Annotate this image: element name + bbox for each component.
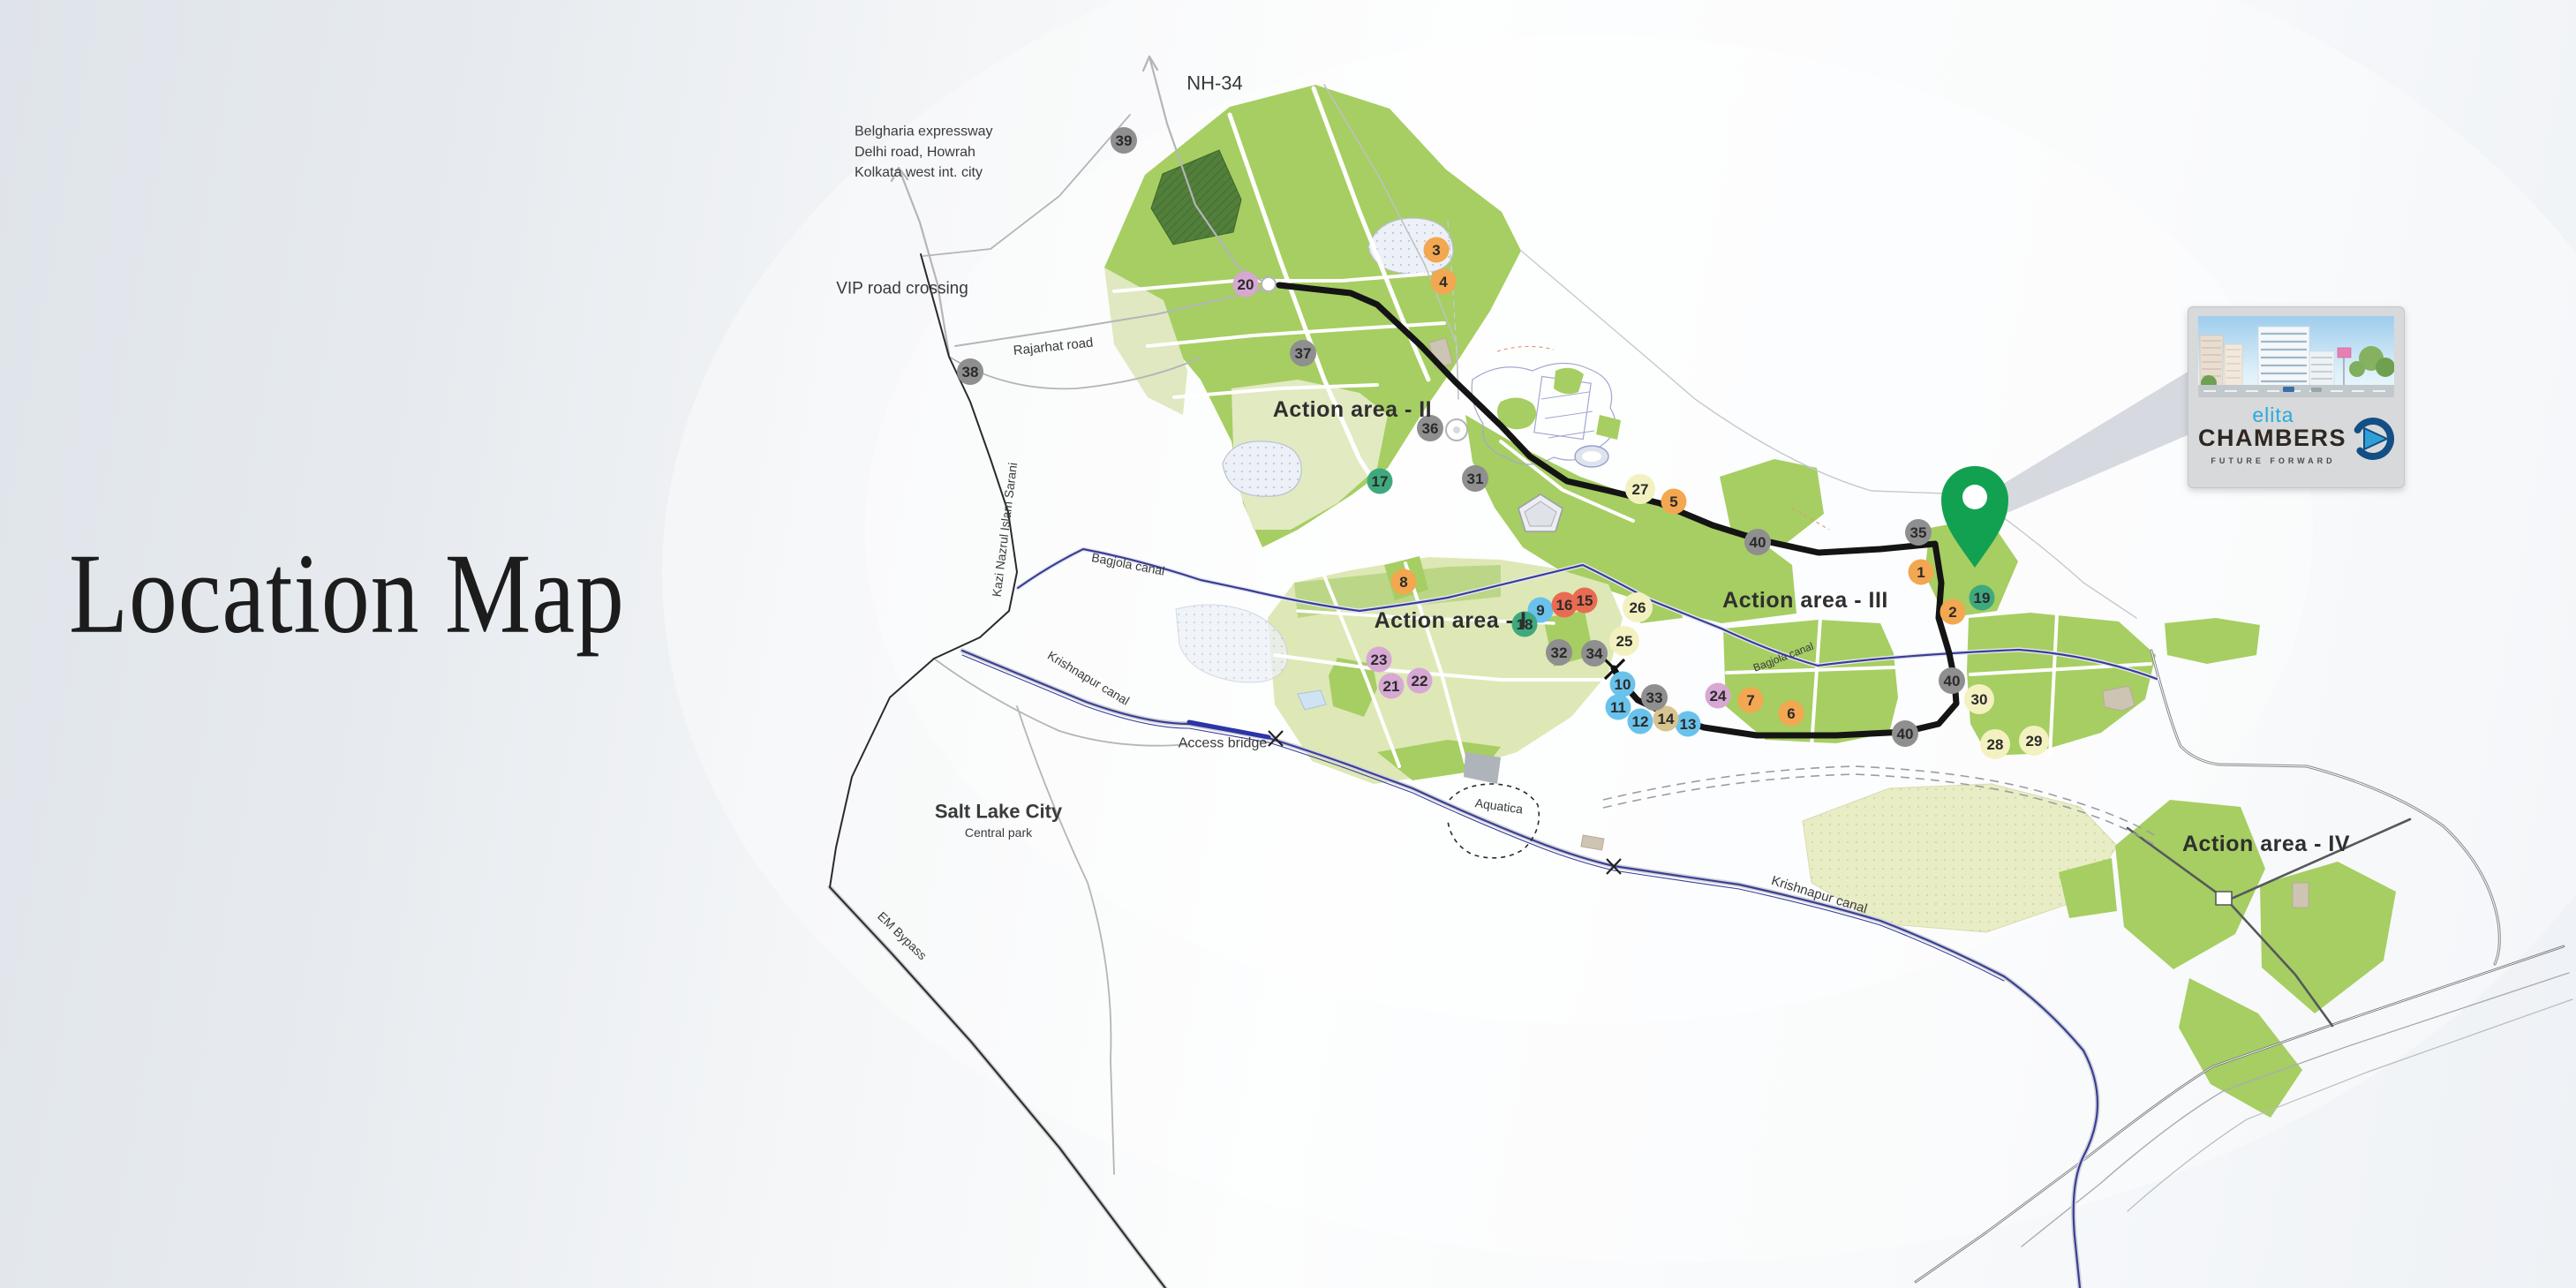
svg-text:21: 21 [1383, 678, 1400, 695]
chambers-wordmark: CHAMBERS [2196, 425, 2348, 452]
map-marker-38: 38 [957, 358, 983, 385]
map-marker-20: 20 [1233, 272, 1259, 298]
svg-text:6: 6 [1787, 705, 1795, 722]
building-render [2198, 316, 2394, 397]
svg-text:11: 11 [1610, 699, 1626, 716]
page-title: Location Map [69, 528, 726, 660]
svg-text:3: 3 [1432, 242, 1440, 259]
map-marker-29: 29 [2019, 726, 2049, 756]
map-marker-25: 25 [1609, 626, 1639, 656]
brand-card: elita CHAMBERS FUTURE FORWARD [2188, 306, 2405, 488]
map-marker-30: 30 [1964, 684, 1994, 714]
map-marker-16: 16 [1552, 592, 1578, 618]
svg-text:25: 25 [1616, 633, 1633, 650]
map-marker-22: 22 [1407, 668, 1433, 694]
map-marker-13: 13 [1676, 712, 1701, 737]
map-marker-21: 21 [1379, 674, 1405, 699]
svg-text:5: 5 [1669, 493, 1677, 510]
svg-text:28: 28 [1987, 736, 2004, 753]
map-marker-27: 27 [1625, 474, 1655, 504]
svg-text:10: 10 [1615, 676, 1631, 693]
svg-text:31: 31 [1467, 471, 1484, 487]
place-label-salt-lake: Salt Lake City [935, 801, 1063, 823]
map-marker-19: 19 [1970, 585, 1995, 611]
svg-text:32: 32 [1551, 644, 1568, 661]
map-marker-34: 34 [1581, 640, 1608, 667]
svg-text:36: 36 [1422, 420, 1439, 437]
svg-text:2: 2 [1948, 604, 1956, 621]
svg-text:38: 38 [962, 364, 979, 380]
svg-text:9: 9 [1536, 602, 1544, 619]
map-marker-17: 17 [1367, 469, 1393, 494]
area-label-aa3: Action area - III [1722, 588, 1888, 613]
svg-text:37: 37 [1295, 345, 1312, 362]
svg-text:17: 17 [1372, 473, 1389, 490]
brand-tagline: FUTURE FORWARD [2198, 456, 2348, 465]
map-marker-23: 23 [1367, 647, 1392, 673]
svg-text:16: 16 [1556, 597, 1573, 614]
map-marker-40: 40 [1744, 529, 1771, 555]
map-marker-33: 33 [1641, 684, 1668, 711]
map-marker-26: 26 [1623, 592, 1653, 622]
svg-text:19: 19 [1974, 590, 1991, 606]
svg-text:39: 39 [1116, 132, 1133, 149]
map-marker-2: 2 [1940, 599, 1966, 625]
place-label-access-bridge: Access bridge [1179, 736, 1268, 751]
svg-text:40: 40 [1944, 673, 1961, 689]
map-marker-1: 1 [1909, 560, 1934, 585]
svg-text:29: 29 [2026, 733, 2043, 749]
svg-text:7: 7 [1746, 692, 1754, 709]
svg-text:34: 34 [1586, 645, 1603, 662]
svg-text:14: 14 [1658, 711, 1675, 727]
logo-play-icon [2350, 416, 2396, 462]
svg-text:30: 30 [1971, 691, 1988, 708]
map-marker-5: 5 [1661, 489, 1687, 515]
map-marker-24: 24 [1706, 683, 1731, 709]
svg-text:23: 23 [1371, 652, 1388, 668]
svg-text:26: 26 [1630, 599, 1646, 616]
area-label-aa2: Action area - II [1273, 397, 1432, 422]
map-marker-40: 40 [1892, 720, 1918, 747]
svg-text:22: 22 [1412, 673, 1428, 689]
map-marker-8: 8 [1391, 569, 1417, 595]
svg-text:33: 33 [1646, 689, 1663, 706]
svg-text:40: 40 [1897, 726, 1914, 742]
map-marker-3: 3 [1424, 237, 1450, 263]
svg-text:12: 12 [1632, 713, 1649, 730]
svg-text:4: 4 [1439, 274, 1448, 290]
elita-wordmark: elita [2198, 403, 2348, 427]
svg-text:13: 13 [1680, 716, 1697, 733]
place-label-vip: VIP road crossing [836, 280, 968, 298]
svg-text:8: 8 [1399, 574, 1407, 591]
map-marker-35: 35 [1905, 519, 1932, 546]
map-marker-6: 6 [1779, 701, 1804, 727]
area-label-aa4: Action area - IV [2182, 832, 2350, 856]
map-marker-10: 10 [1610, 672, 1636, 697]
map-marker-32: 32 [1546, 639, 1572, 666]
map-marker-31: 31 [1462, 465, 1488, 492]
map-marker-11: 11 [1606, 695, 1631, 720]
map-marker-37: 37 [1290, 340, 1316, 366]
svg-text:40: 40 [1750, 534, 1766, 551]
map-marker-40: 40 [1939, 667, 1965, 694]
map-marker-7: 7 [1738, 688, 1764, 713]
map-marker-28: 28 [1980, 729, 2010, 759]
map-marker-4: 4 [1431, 269, 1457, 295]
svg-text:15: 15 [1577, 592, 1593, 609]
svg-text:20: 20 [1238, 276, 1254, 293]
place-label-belgharia: Belgharia expresswayDelhi road, HowrahKo… [855, 124, 993, 180]
place-label-nh34: NH-34 [1186, 72, 1243, 94]
area-label-aa1: Action area - I [1375, 608, 1527, 633]
svg-text:24: 24 [1710, 688, 1727, 704]
map-marker-39: 39 [1111, 127, 1137, 154]
location-map-poster: 1234567891011121314151617181920212223242… [0, 0, 2576, 1288]
svg-text:27: 27 [1632, 481, 1649, 498]
svg-text:35: 35 [1910, 524, 1927, 541]
svg-text:1: 1 [1917, 564, 1924, 581]
map-marker-12: 12 [1628, 709, 1653, 734]
place-label-central-park: Central park [965, 825, 1033, 840]
